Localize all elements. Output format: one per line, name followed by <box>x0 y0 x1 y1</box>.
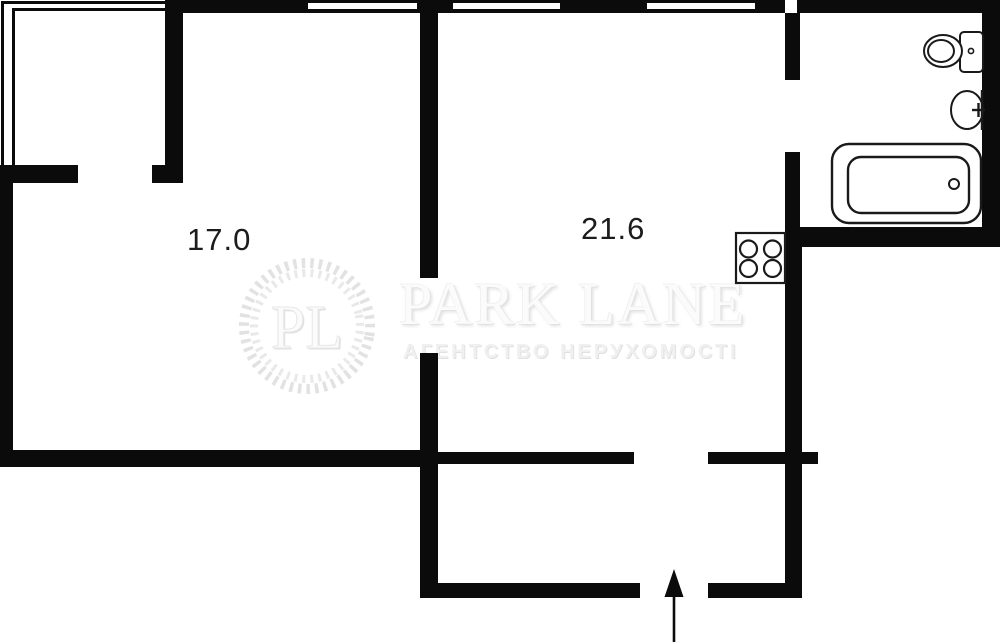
wall-top-3 <box>560 0 647 13</box>
wall-hall-bottom-left <box>420 583 640 598</box>
wall-bathroom-top <box>797 0 1000 13</box>
wall-balcony-right <box>165 0 183 183</box>
wall-right <box>785 227 802 598</box>
wall-balcony-bottom-right <box>152 165 183 183</box>
floor-plan: PL PL PARK LANE АГЕНТСТВО НЕРУХОМОСТІ <box>0 0 1000 644</box>
window-room-right-2 <box>647 0 755 13</box>
svg-text:PL: PL <box>271 294 343 362</box>
watermark-wreath-logo: PL PL <box>237 256 377 396</box>
watermark-brand-text: PARK LANE <box>399 270 747 339</box>
watermark-tagline-text: АГЕНТСТВО НЕРУХОМОСТІ <box>403 341 739 364</box>
wall-top-4 <box>755 0 785 13</box>
room-left-area-label: 17.0 <box>187 222 251 258</box>
window-room-right-1 <box>453 0 560 13</box>
wall-interroom-lower <box>420 353 438 598</box>
wall-bath-partition-upper <box>785 13 800 80</box>
wall-bathroom-bottom <box>785 227 1000 247</box>
wall-hall-top-nub <box>800 452 818 464</box>
wall-hall-top-left <box>438 452 634 464</box>
laurel-wreath-icon: PL PL <box>237 256 377 396</box>
stove-icon <box>734 231 787 285</box>
wall-top-1 <box>165 0 308 13</box>
balcony-inner-wall <box>12 8 170 168</box>
hallway-region <box>438 466 785 583</box>
room-right-area-label: 21.6 <box>581 211 645 247</box>
sink-icon <box>948 88 988 132</box>
wall-top-2 <box>417 0 453 13</box>
entrance-arrow-icon <box>658 566 690 644</box>
window-room-left <box>308 0 417 13</box>
wall-interroom-upper <box>420 13 438 278</box>
wall-room-left-bottom <box>0 450 438 467</box>
wall-left <box>0 165 13 467</box>
bathtub-icon <box>830 142 984 226</box>
toilet-icon <box>920 28 986 76</box>
